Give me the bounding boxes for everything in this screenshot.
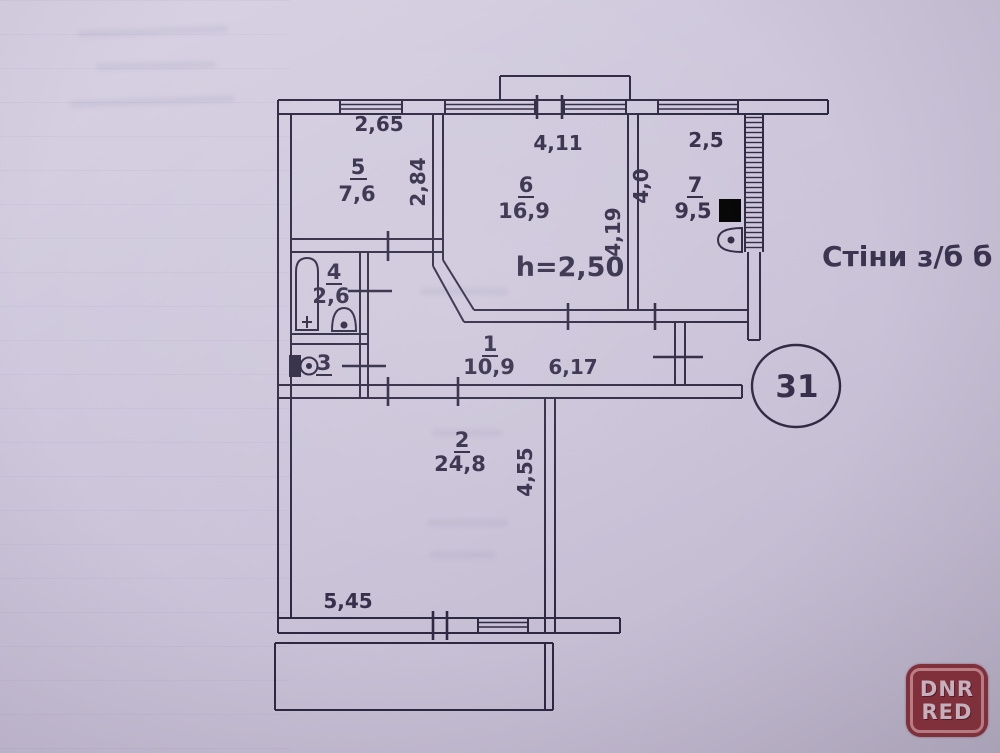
room-7-area: 9,5: [674, 199, 711, 223]
dim-room7-depth: 4,0: [629, 168, 653, 203]
wall-material-note: Стіни з/б б: [822, 240, 992, 273]
dnr-red-watermark-frame: DNR RED: [910, 668, 984, 733]
dim-top-window-right: 2,5: [688, 128, 723, 152]
watermark-line2: RED: [922, 701, 973, 724]
dnr-red-watermark: DNR RED: [906, 664, 988, 737]
dim-room6-depth: 4,19: [601, 207, 625, 256]
room-5-number: 5: [351, 155, 366, 179]
dim-room2-width: 5,45: [323, 589, 372, 613]
hatched-wall-fill: [746, 115, 762, 251]
apartment-number: 31: [775, 369, 818, 405]
room-6-area: 16,9: [498, 199, 550, 223]
toilet-icon: [289, 355, 318, 377]
room-1-area: 10,9: [463, 355, 515, 379]
ceiling-height-label: h=2,50: [516, 252, 624, 283]
room-2-number: 2: [455, 428, 470, 452]
stove-icon: [719, 199, 741, 222]
dim-room2-depth: 4,55: [513, 447, 537, 496]
room-1-number: 1: [483, 332, 498, 356]
dim-top-window-left: 2,65: [354, 112, 403, 136]
apartment-number-circle: 31: [752, 345, 840, 427]
room-6-number: 6: [519, 173, 534, 197]
dim-top-window-center: 4,11: [533, 131, 582, 155]
room-3-number: 3: [317, 351, 332, 375]
floor-plan-drawing: 2,65 4,11 2,5 2,84 4,0 4,19 6,17 4,55 5,…: [0, 0, 1000, 753]
room-4-number: 4: [327, 260, 342, 284]
room-5-area: 7,6: [338, 182, 375, 206]
scanned-floor-plan-photo: 2,65 4,11 2,5 2,84 4,0 4,19 6,17 4,55 5,…: [0, 0, 1000, 753]
kitchen-sink-icon: [718, 228, 742, 252]
window-glazing-lines: [340, 105, 738, 628]
washbasin-icon: [332, 308, 356, 331]
watermark-line1: DNR: [920, 678, 974, 701]
room-2-area: 24,8: [434, 452, 486, 476]
room-4-area: 2,6: [312, 284, 349, 308]
dim-room5-depth: 2,84: [406, 157, 430, 206]
room-7-number: 7: [688, 173, 703, 197]
dim-hallway-length: 6,17: [548, 355, 597, 379]
